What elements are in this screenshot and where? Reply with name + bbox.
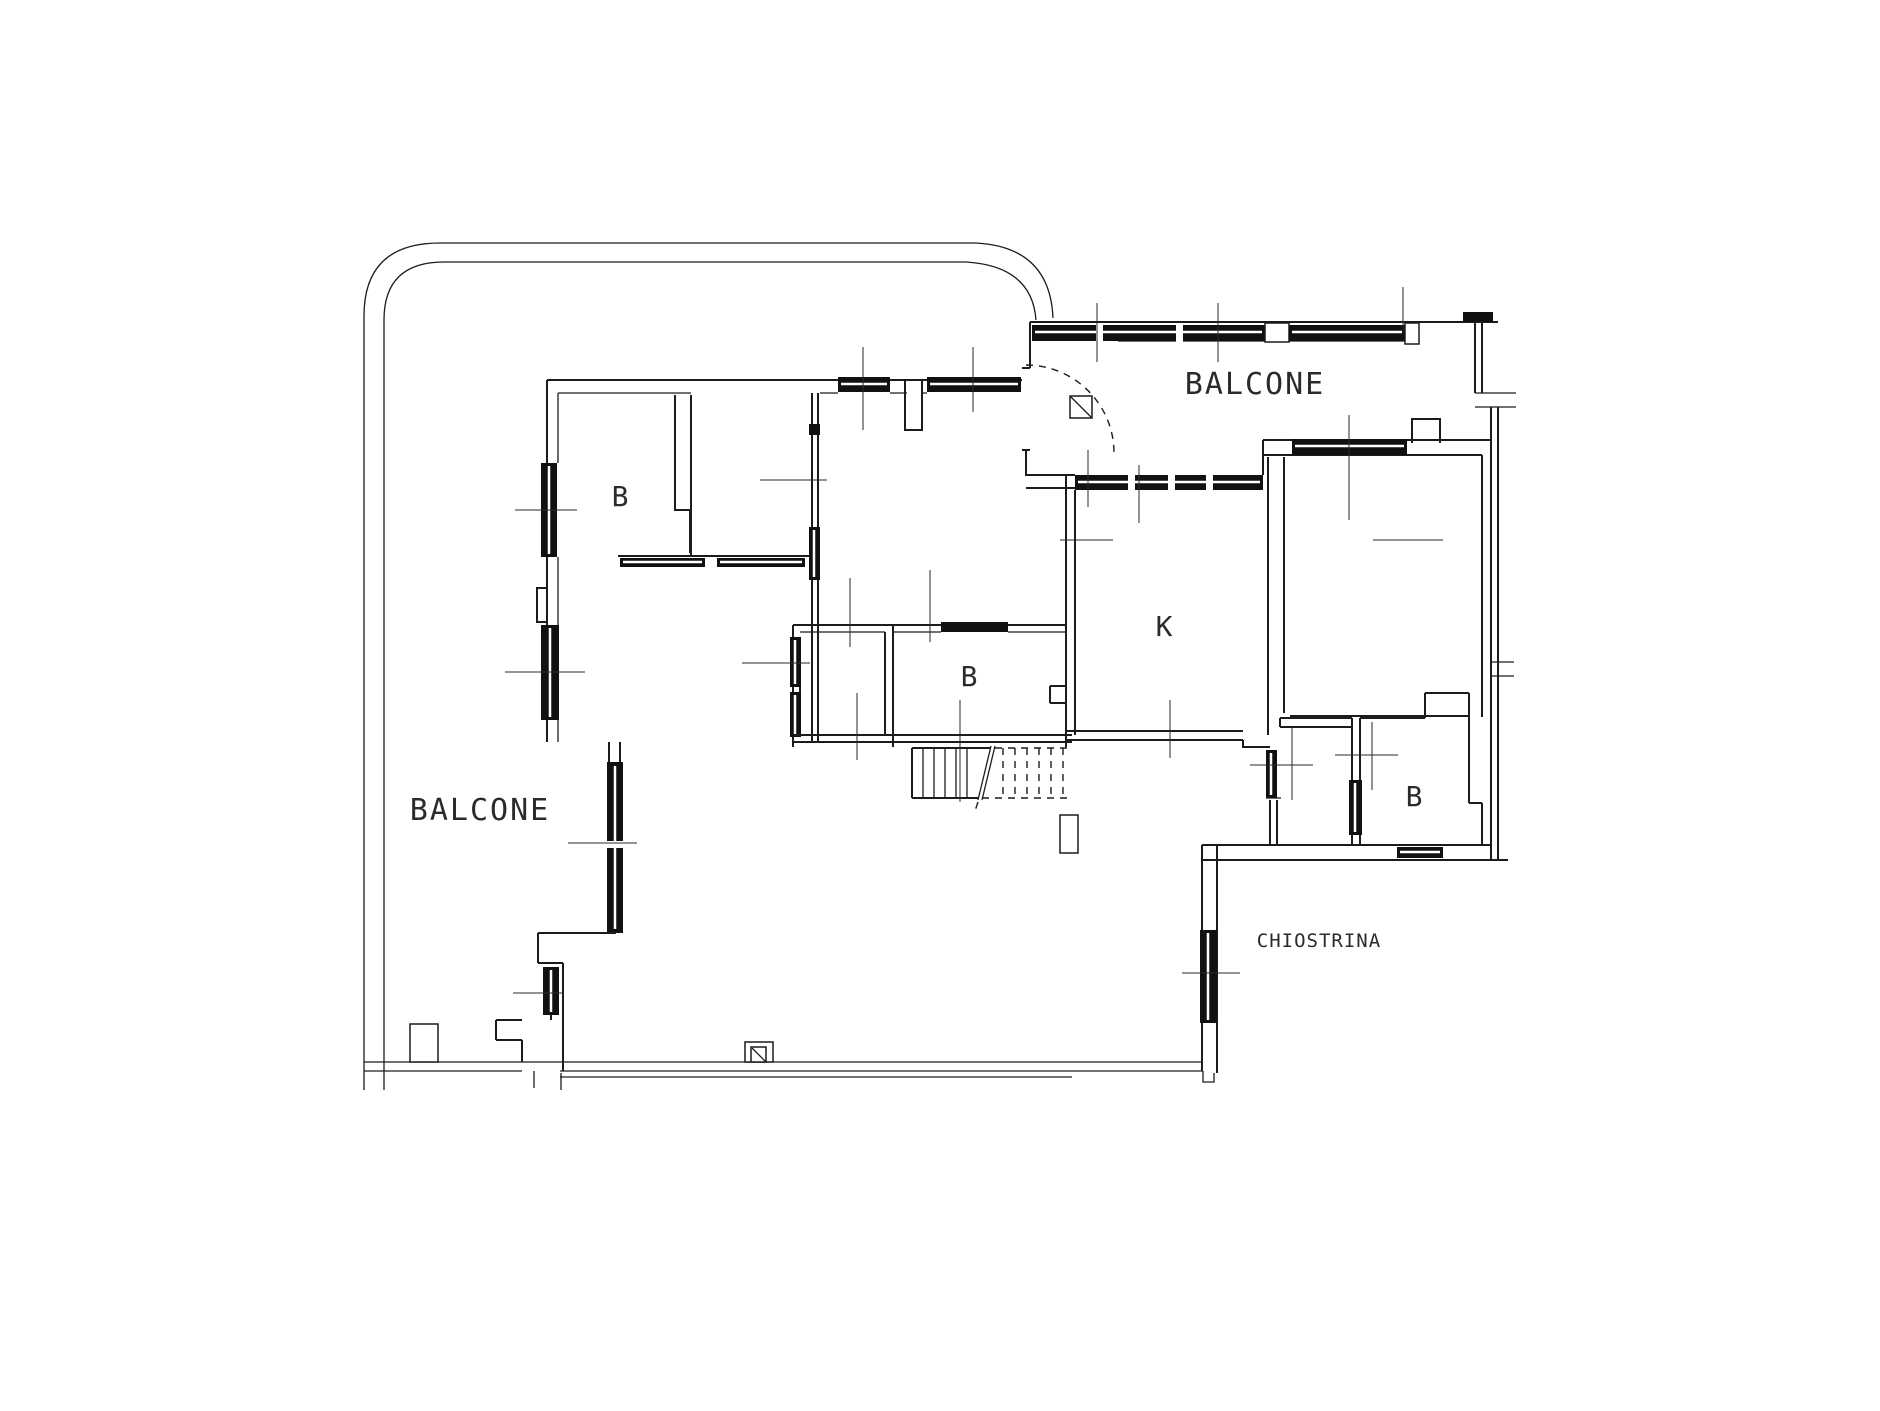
window-top-1 bbox=[838, 377, 890, 392]
label-balcone-left: BALCONE bbox=[410, 793, 550, 828]
label-bath-top-left: B bbox=[612, 480, 631, 513]
label-bath-middle: B bbox=[961, 660, 980, 693]
railing-pillar bbox=[1265, 323, 1289, 342]
wall-tick bbox=[1463, 312, 1493, 322]
chiostrina-walls bbox=[1200, 845, 1508, 1073]
floor-plan-page: BALCONE BALCONE CHIOSTRINA B B B K bbox=[0, 0, 1880, 1411]
bottom-boundary bbox=[364, 1024, 1214, 1090]
label-chiostrina: CHIOSTRINA bbox=[1257, 930, 1381, 952]
center-rooms bbox=[790, 622, 1072, 747]
balcony-railing bbox=[364, 243, 1053, 1090]
window-top-2 bbox=[927, 377, 1021, 392]
drain-symbol bbox=[745, 1042, 773, 1062]
label-balcone-top: BALCONE bbox=[1185, 367, 1325, 402]
right-room bbox=[1263, 439, 1491, 717]
door-leaf-symbol bbox=[1070, 396, 1092, 418]
bath-middle-window bbox=[941, 622, 1008, 632]
terrace-wall-left bbox=[496, 742, 624, 1071]
stairs bbox=[912, 746, 1078, 853]
column bbox=[1060, 815, 1078, 853]
label-bath-right: B bbox=[1406, 780, 1425, 813]
label-kitchen: K bbox=[1156, 610, 1175, 643]
floor-plan-drawing: BALCONE BALCONE CHIOSTRINA B B B K bbox=[0, 0, 1880, 1411]
balcony-pillar bbox=[410, 1024, 438, 1062]
